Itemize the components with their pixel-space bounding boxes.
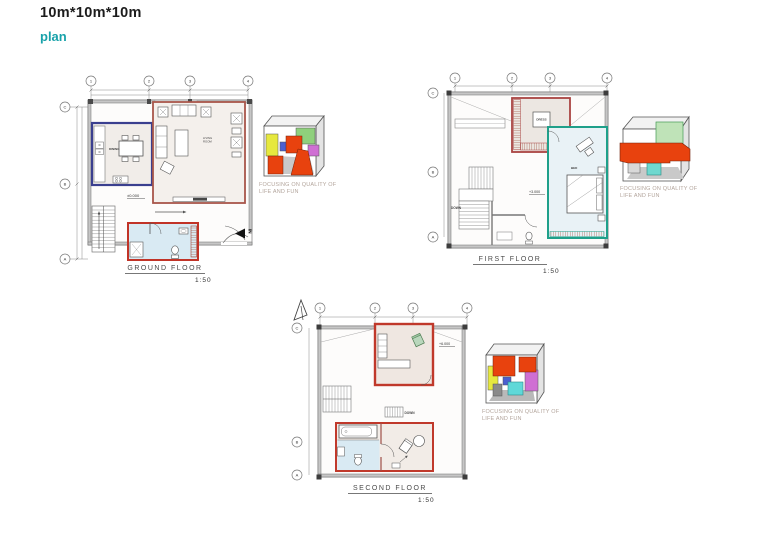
grid-row-label: C <box>432 91 435 96</box>
bath-office-room <box>336 423 433 471</box>
dining-kitchen-room: DINING <box>92 123 152 185</box>
dining-label: DINING <box>109 147 120 151</box>
ground-floor-title: GROUND FLOOR 1:50 <box>125 265 212 284</box>
second-floor-title: SECOND FLOOR 1:50 <box>348 485 435 504</box>
staircase-ground <box>92 206 115 252</box>
svg-text:+6.000: +6.000 <box>439 342 450 346</box>
grid-bubbles-top <box>450 73 612 83</box>
svg-text:±0.000: ±0.000 <box>127 193 140 198</box>
axon-view-second <box>481 340 547 407</box>
second-floor-scale: 1:50 <box>418 497 435 504</box>
svg-text:FIRST FLOOR: FIRST FLOOR <box>479 256 542 263</box>
second-floor-plan: 1 2 3 4 C B A <box>286 294 491 514</box>
axon-view-first <box>618 113 692 185</box>
ground-floor-scale: 1:50 <box>195 277 212 284</box>
living-room-label2: ROOM <box>203 140 212 144</box>
grid-bubbles-left <box>292 323 302 480</box>
axon-view-ground <box>258 112 326 180</box>
svg-text:GROUND FLOOR: GROUND FLOOR <box>127 265 202 272</box>
living-room: LIVING ROOM <box>153 102 245 203</box>
page-subtitle: plan <box>40 29 67 44</box>
grid-row-label: B <box>432 170 435 175</box>
down-label: DOWN <box>405 411 416 415</box>
axon-caption-second: FOCUSING ON QUALITY OFLIFE AND FUN <box>482 409 560 423</box>
drawing-sheet: 10m*10m*10m plan 1 2 3 4 C B A <box>0 0 774 536</box>
axon-caption-ground: FOCUSING ON QUALITY OFLIFE AND FUN <box>259 182 337 196</box>
first-floor-plan: 1 2 3 4 C B A <box>425 55 630 290</box>
dimension-lines-top <box>90 86 250 100</box>
axon-caption-first: FOCUSING ON QUALITY OFLIFE AND FUN <box>620 186 698 200</box>
bedroom: BED <box>548 127 607 238</box>
ground-floor-plan: 1 2 3 4 C B A <box>55 66 270 296</box>
entry-label: IN <box>248 229 253 234</box>
grid-bubbles-top <box>86 76 253 86</box>
north-arrow-icon <box>294 300 307 320</box>
grid-row-label: A <box>64 257 67 262</box>
dimension-lines-top <box>454 83 609 92</box>
svg-text:+3.000: +3.000 <box>529 190 540 194</box>
dimension-lines-left <box>70 106 88 261</box>
grid-row-label: A <box>432 235 435 240</box>
grid-bubbles-top <box>315 303 472 313</box>
grid-row-label: A <box>296 473 299 478</box>
svg-text:SECOND FLOOR: SECOND FLOOR <box>353 485 427 492</box>
study-room <box>375 324 433 385</box>
first-floor-scale: 1:50 <box>543 268 560 275</box>
first-floor-title: FIRST FLOOR 1:50 <box>473 256 560 275</box>
page-title: 10m*10m*10m <box>40 5 142 21</box>
grid-row-label: C <box>64 105 67 110</box>
down-label: DOWN <box>451 206 462 210</box>
grid-row-label: B <box>64 182 67 187</box>
bed-label: BED <box>571 166 578 170</box>
dress-label: DRESS <box>536 118 546 122</box>
bathroom <box>128 223 198 260</box>
grid-row-label: B <box>296 440 299 445</box>
grid-bubbles-left <box>428 88 438 242</box>
grid-row-label: C <box>296 326 299 331</box>
